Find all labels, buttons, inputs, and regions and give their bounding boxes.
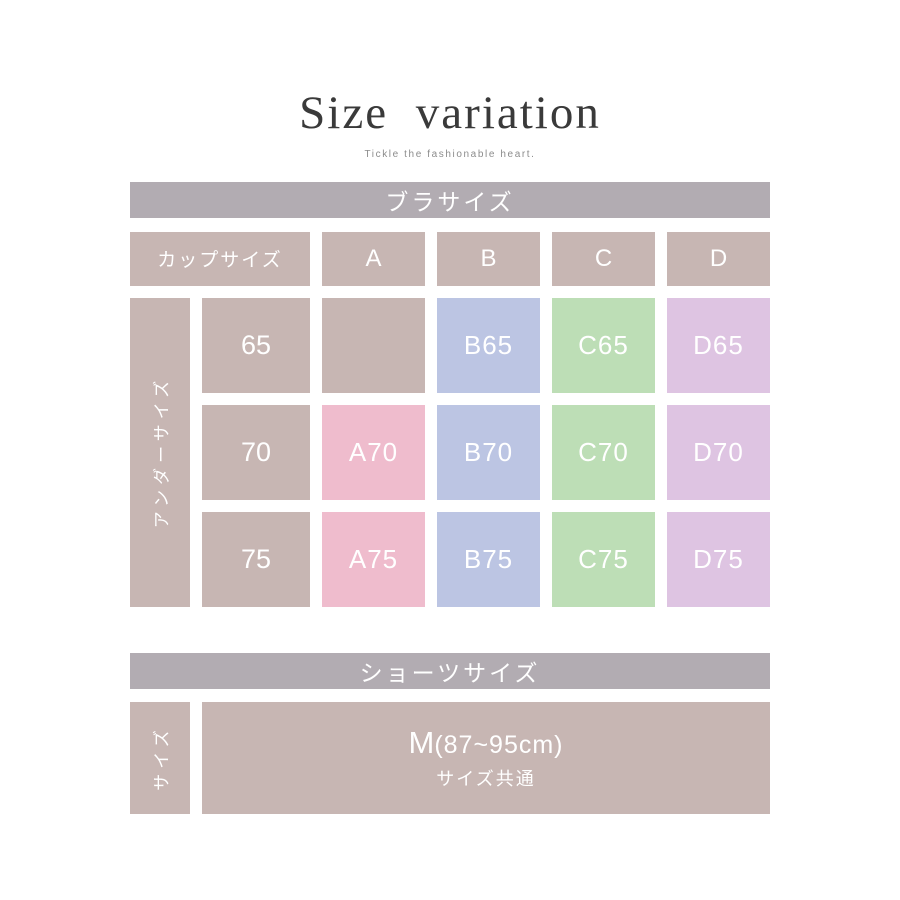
under-cell-75: 75 [202,512,310,607]
shorts-size-value: M (87~95cm) [408,725,563,761]
bra-size-section: ブラサイズ カップサイズ A B C D アンダーサイズ 65 B65 C65 … [130,182,770,607]
cup-size-label-cell: カップサイズ [130,232,310,286]
shorts-size-note: サイズ共通 [436,765,535,791]
shorts-size-value-cell: M (87~95cm) サイズ共通 [202,702,770,814]
bra-size-header-bar: ブラサイズ [130,182,770,218]
cell-d70: D70 [667,405,770,500]
cup-header-a: A [322,232,425,286]
bra-size-table: カップサイズ A B C D アンダーサイズ 65 B65 C65 D65 70… [130,232,770,607]
page-title: Size variation [130,0,770,140]
cup-header-d: D [667,232,770,286]
cell-c75: C75 [552,512,655,607]
shorts-size-label: サイズ [148,725,173,791]
under-cell-65: 65 [202,298,310,393]
shorts-size-header-bar: ショーツサイズ [130,653,770,689]
shorts-size-main: M [408,725,434,761]
under-cell-70: 70 [202,405,310,500]
cell-d65: D65 [667,298,770,393]
page-subtitle: Tickle the fashionable heart. [130,149,770,160]
cell-a65-empty [322,298,425,393]
under-size-label: アンダーサイズ [148,376,173,528]
cell-c65: C65 [552,298,655,393]
cell-c70: C70 [552,405,655,500]
shorts-size-section: ショーツサイズ サイズ M (87~95cm) サイズ共通 [130,653,770,814]
shorts-size-range: (87~95cm) [434,731,563,760]
cell-a75: A75 [322,512,425,607]
under-size-label-cell: アンダーサイズ [130,298,190,607]
shorts-size-label-cell: サイズ [130,702,190,814]
cup-header-c: C [552,232,655,286]
cell-b70: B70 [437,405,540,500]
cell-d75: D75 [667,512,770,607]
shorts-size-table: サイズ M (87~95cm) サイズ共通 [130,702,770,814]
cell-b75: B75 [437,512,540,607]
size-variation-page: Size variation Tickle the fashionable he… [0,0,900,900]
content-column: Size variation Tickle the fashionable he… [130,0,770,814]
cell-b65: B65 [437,298,540,393]
cup-header-b: B [437,232,540,286]
cell-a70: A70 [322,405,425,500]
